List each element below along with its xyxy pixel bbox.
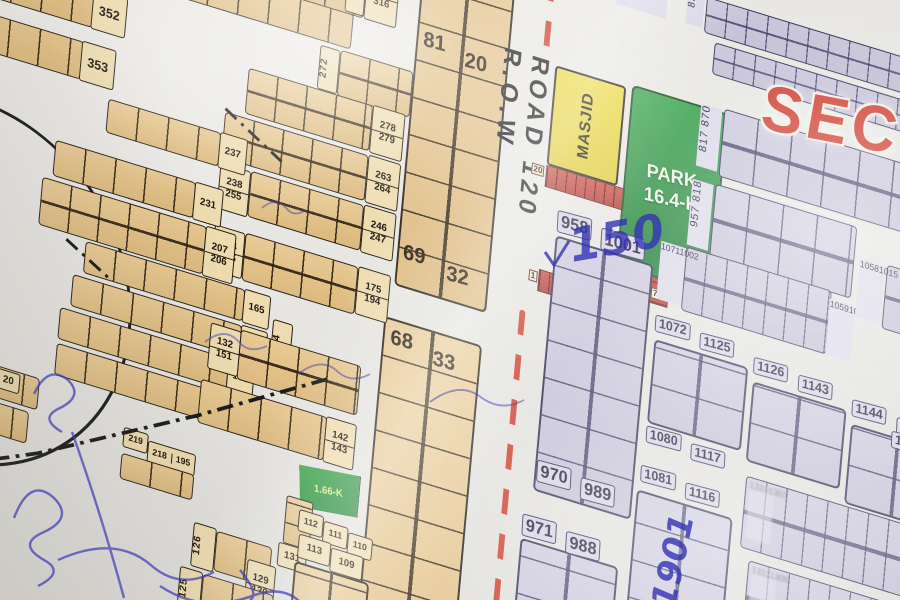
plot-label-175-194: 175194: [354, 266, 391, 324]
plot-label-1072: 1072: [655, 314, 691, 341]
plot-label-263-264: 263264: [364, 154, 401, 212]
plot-label-1144: 1144: [851, 399, 887, 425]
plot-strip-1058-1015: [881, 265, 900, 391]
plot-label-207-206: 207206: [202, 226, 237, 285]
plot-label-219: 219: [122, 427, 149, 455]
plot-label-278-279: 278279: [369, 105, 406, 163]
plot-label-1117: 1117: [690, 443, 725, 469]
plot-label-1081: 1081: [640, 464, 676, 491]
plot-label-317-316: 317316: [363, 0, 400, 29]
plot-label-1126: 1126: [753, 357, 789, 383]
map-surface: 20 81 20 69 32 68 33 352 353 315 317316 …: [0, 0, 900, 600]
plot-label: 13111306: [747, 564, 777, 600]
plot-label-353: 353: [79, 40, 117, 90]
plot-label: 13101307: [745, 480, 775, 545]
road-centerline: [543, 0, 571, 52]
plot-label-246-247: 246247: [360, 204, 397, 262]
plot-label-1071-1002: 10711002: [656, 241, 686, 306]
plot-label-83: 83: [685, 0, 705, 28]
plot-label-165: 165: [242, 288, 272, 330]
plot-label-1058-1015: 10581015: [855, 259, 885, 324]
plot-label-352: 352: [90, 0, 128, 39]
plot-label-834: 834: [616, 0, 668, 19]
plot-strip-237: [105, 99, 221, 167]
commercial-plot-1: 1: [528, 269, 537, 283]
plot-label-1059-1014: 10591014: [825, 298, 855, 361]
plot-label-132-151: 132151: [207, 322, 242, 377]
plot-label-272: 272: [317, 45, 341, 95]
plot-label-142-143: 142143: [322, 416, 357, 471]
map-photo: 20 81 20 69 32 68 33 352 353 315 317316 …: [0, 0, 900, 600]
plot-label-231: 231: [192, 181, 224, 228]
plot-label-125: 125: [176, 566, 203, 600]
